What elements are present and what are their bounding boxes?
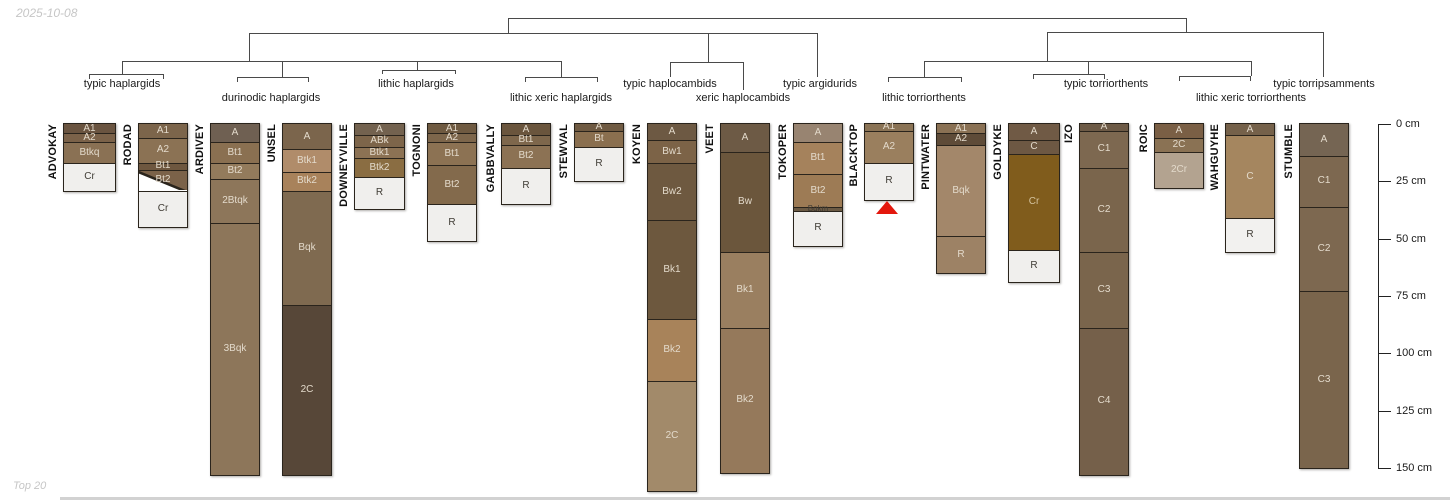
red-triangle-marker xyxy=(876,201,898,214)
soil-column-goldyke: ACCrR xyxy=(1008,123,1060,283)
horizon-label: A xyxy=(648,126,696,138)
group-label-lithic-torriorthents: lithic torriorthents xyxy=(882,92,966,104)
dendrogram-segment xyxy=(508,18,1186,19)
horizon-label: A xyxy=(1155,125,1203,137)
soil-column-tognoni: A1A2Bt1Bt2R xyxy=(427,123,477,242)
series-name-rodad: RODAD xyxy=(122,124,134,165)
series-name-tokoper: TOKOPER xyxy=(777,124,789,180)
dendrogram-segment xyxy=(163,74,164,79)
series-name-pintwater: PINTWATER xyxy=(920,124,932,190)
depth-axis-tick xyxy=(1378,468,1391,469)
horizon-label: Btkq xyxy=(64,147,115,159)
dendrogram-segment xyxy=(508,18,509,33)
series-name-advokay: ADVOKAY xyxy=(47,124,59,179)
horizon-label: Btk1 xyxy=(355,147,404,159)
horizon-label: Bk2 xyxy=(721,394,769,406)
dendrogram-segment xyxy=(817,33,818,77)
horizon-label: Bqk xyxy=(937,185,985,197)
dendrogram-segment xyxy=(1323,32,1324,77)
soil-column-stumble: AC1C2C3 xyxy=(1299,123,1349,469)
horizon-label: Btk2 xyxy=(355,162,404,174)
soil-column-stewval: ABtR xyxy=(574,123,624,182)
dendrogram-segment xyxy=(888,77,889,82)
dendrogram-segment xyxy=(122,61,123,74)
soil-column-roic: A2C2Cr xyxy=(1154,123,1204,189)
group-label-lithic-xeric-torriorthents: lithic xeric torriorthents xyxy=(1196,92,1306,104)
horizon-label: Bt2 xyxy=(502,150,550,162)
watermark-top-n: Top 20 xyxy=(13,480,46,492)
group-label-lithic-xeric-haplargids: lithic xeric haplargids xyxy=(510,92,612,104)
depth-axis-tick-label: 50 cm xyxy=(1396,233,1426,245)
horizon-label: C3 xyxy=(1080,284,1128,296)
horizon-label: A2 xyxy=(937,133,985,145)
horizon-label: R xyxy=(794,222,842,234)
watermark-date: 2025-10-08 xyxy=(16,6,77,20)
depth-axis-tick xyxy=(1378,296,1391,297)
dendrogram-segment xyxy=(561,61,562,77)
series-name-izo: IZO xyxy=(1063,124,1075,143)
horizon-label: C1 xyxy=(1080,143,1128,155)
depth-axis-tick-label: 0 cm xyxy=(1396,118,1420,130)
depth-axis-tick-label: 125 cm xyxy=(1396,405,1432,417)
dendrogram-segment xyxy=(249,33,250,61)
horizon-label: R xyxy=(1009,260,1059,272)
horizon-label: 2Btqk xyxy=(211,195,259,207)
horizon-label: A2 xyxy=(139,144,187,156)
soil-column-koyen: ABw1Bw2Bk1Bk22C xyxy=(647,123,697,492)
series-name-koyen: KOYEN xyxy=(631,124,643,164)
soil-column-blacktop: A1A2R xyxy=(864,123,914,201)
soil-column-gabbvally: ABt1Bt2R xyxy=(501,123,551,205)
dendrogram-segment xyxy=(1179,76,1180,81)
group-label-typic-haplocambids: typic haplocambids xyxy=(623,78,717,90)
horizon-label: Bt2 xyxy=(428,179,476,191)
group-label-typic-argidurids: typic argidurids xyxy=(783,78,857,90)
horizon-label: 2Cr xyxy=(1155,164,1203,176)
series-name-stewval: STEWVAL xyxy=(558,124,570,178)
group-label-typic-torripsamments: typic torripsamments xyxy=(1273,78,1374,90)
horizon-label: Cr xyxy=(139,203,187,215)
group-label-lithic-haplargids: lithic haplargids xyxy=(378,78,454,90)
horizon-label: 2C xyxy=(648,430,696,442)
dendrogram-segment xyxy=(308,77,309,82)
dendrogram-segment xyxy=(1047,32,1323,33)
group-label-durinodic-haplargids: durinodic haplargids xyxy=(222,92,320,104)
depth-axis-tick-label: 100 cm xyxy=(1396,347,1432,359)
dendrogram-segment xyxy=(237,77,238,82)
horizon-label: A2 xyxy=(865,141,913,153)
depth-axis-tick xyxy=(1378,124,1391,125)
horizon-label: Cr xyxy=(1009,196,1059,208)
series-name-ardivey: ARDIVEY xyxy=(194,124,206,174)
soil-column-downeyville: AABkBtk1Btk2R xyxy=(354,123,405,210)
horizon-label: Bk1 xyxy=(721,284,769,296)
horizon-label: R xyxy=(1226,229,1274,241)
horizon-label: Bk2 xyxy=(648,344,696,356)
horizon-label: Bt2 xyxy=(794,185,842,197)
dendrogram-segment xyxy=(1186,18,1187,32)
horizon-label: A xyxy=(1009,126,1059,138)
horizon-label: A xyxy=(794,127,842,139)
horizon-label: C xyxy=(1009,141,1059,153)
series-name-gabbvally: GABBVALLY xyxy=(485,124,497,192)
horizon-label: Bt xyxy=(575,133,623,145)
soil-dendrogram-chart: 2025-10-08 typic haplargidsdurinodic hap… xyxy=(0,0,1450,500)
horizon-label: Bt1 xyxy=(428,148,476,160)
horizon-label: C3 xyxy=(1300,374,1348,386)
horizon-label: Btk2 xyxy=(283,175,331,187)
series-name-tognoni: TOGNONI xyxy=(411,124,423,177)
horizon-label: 3Bqk xyxy=(211,343,259,355)
dendrogram-segment xyxy=(888,77,961,78)
depth-axis-tick-label: 75 cm xyxy=(1396,290,1426,302)
horizon-label: C1 xyxy=(1300,175,1348,187)
series-name-roic: ROIC xyxy=(1138,124,1150,152)
dendrogram-segment xyxy=(1179,76,1250,77)
soil-column-veet: ABwBk1Bk2 xyxy=(720,123,770,474)
dendrogram-segment xyxy=(670,62,671,77)
dendrogram-segment xyxy=(1250,76,1251,81)
series-name-goldyke: GOLDYKE xyxy=(992,124,1004,180)
horizon-label: R xyxy=(865,175,913,187)
series-name-unsel: UNSEL xyxy=(266,124,278,162)
horizon-label: A xyxy=(355,124,404,136)
dendrogram-segment xyxy=(1088,61,1089,74)
dendrogram-segment xyxy=(1033,74,1034,79)
dendrogram-segment xyxy=(743,62,744,90)
horizon-label: 2C xyxy=(283,384,331,396)
horizon-label: C2 xyxy=(1080,204,1128,216)
soil-column-unsel: ABtk1Btk2Bqk2C xyxy=(282,123,332,476)
dendrogram-segment xyxy=(1033,74,1104,75)
soil-column-ardivey: ABt1Bt22Btqk3Bqk xyxy=(210,123,260,476)
dendrogram-segment xyxy=(455,70,456,74)
soil-column-izo: AC1C2C3C4 xyxy=(1079,123,1129,476)
dendrogram-segment xyxy=(89,74,163,75)
soil-column-wahguyhe: ACR xyxy=(1225,123,1275,253)
horizon-label: A xyxy=(211,127,259,139)
horizon-label: R xyxy=(502,180,550,192)
depth-axis-tick-label: 25 cm xyxy=(1396,175,1426,187)
horizon-label: Bqk xyxy=(283,242,331,254)
horizon-label: Bt2 xyxy=(211,165,259,177)
dendrogram-segment xyxy=(924,61,925,77)
series-name-blacktop: BLACKTOP xyxy=(848,124,860,187)
horizon-label: R xyxy=(937,249,985,261)
depth-axis-tick xyxy=(1378,411,1391,412)
group-label-xeric-haplocambids: xeric haplocambids xyxy=(696,92,790,104)
horizon-label: R xyxy=(575,158,623,170)
horizon-label: C4 xyxy=(1080,395,1128,407)
horizon-label: R xyxy=(355,187,404,199)
group-label-typic-haplargids: typic haplargids xyxy=(84,78,160,90)
horizon-label: Bt1 xyxy=(211,147,259,159)
series-name-downeyville: DOWNEYVILLE xyxy=(338,124,350,207)
horizon-label: ABk xyxy=(355,135,404,147)
dendrogram-segment xyxy=(237,77,308,78)
dendrogram-segment xyxy=(708,33,709,62)
dendrogram-segment xyxy=(282,61,283,77)
horizon-label: Bw xyxy=(721,196,769,208)
horizon-label: Bw2 xyxy=(648,186,696,198)
depth-axis-tick xyxy=(1378,239,1391,240)
dendrogram-segment xyxy=(1047,32,1048,61)
depth-axis-tick xyxy=(1378,353,1391,354)
depth-axis-tick xyxy=(1378,181,1391,182)
dendrogram-segment xyxy=(597,77,598,82)
soil-column-tokoper: ABt1Bt2BqkmR xyxy=(793,123,843,247)
soil-column-advokay: A1A2BtkqCr xyxy=(63,123,116,192)
horizon-label: Btk1 xyxy=(283,155,331,167)
soil-column-rodad: A1A2Bt1Bt2Cr xyxy=(138,123,188,228)
horizon-label: R xyxy=(428,217,476,229)
horizon-label: A xyxy=(1226,124,1274,136)
horizon-label: Cr xyxy=(64,171,115,183)
dendrogram-segment xyxy=(417,61,418,70)
horizon-label: 2C xyxy=(1155,139,1203,151)
series-name-stumble: STUMBLE xyxy=(1283,124,1295,179)
series-name-veet: VEET xyxy=(704,124,716,154)
horizon-label: C2 xyxy=(1300,243,1348,255)
horizon-label: C xyxy=(1226,171,1274,183)
dendrogram-segment xyxy=(382,70,383,74)
dendrogram-segment xyxy=(1251,61,1252,76)
series-name-wahguyhe: WAHGUYHE xyxy=(1209,124,1221,190)
horizon-label: A1 xyxy=(139,125,187,137)
horizon-label: A xyxy=(1300,134,1348,146)
soil-column-pintwater: A1A2BqkR xyxy=(936,123,986,274)
dendrogram-segment xyxy=(525,77,526,82)
horizon-label: A xyxy=(283,131,331,143)
group-label-typic-torriorthents: typic torriorthents xyxy=(1064,78,1148,90)
dendrogram-segment xyxy=(382,70,455,71)
horizon-label: Bt2 xyxy=(139,174,187,186)
dendrogram-segment xyxy=(961,77,962,82)
horizon-label: Bk1 xyxy=(648,264,696,276)
depth-axis-tick-label: 150 cm xyxy=(1396,462,1432,474)
horizon-label: Bt1 xyxy=(794,152,842,164)
dendrogram-segment xyxy=(670,62,743,63)
dendrogram-segment xyxy=(525,77,597,78)
dendrogram-segment xyxy=(249,33,817,34)
dendrogram-segment xyxy=(122,61,561,62)
horizon-label: Bw1 xyxy=(648,146,696,158)
horizon-label: A xyxy=(721,132,769,144)
